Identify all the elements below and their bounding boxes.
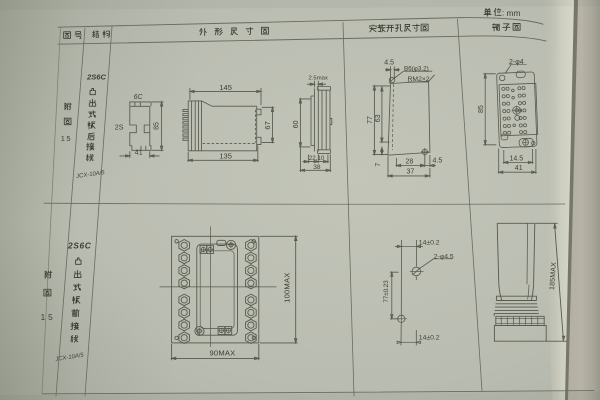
svg-text::: : bbox=[502, 8, 504, 17]
svg-text:22,10: 22,10 bbox=[309, 155, 325, 162]
svg-text:6C: 6C bbox=[134, 94, 144, 101]
svg-text:37: 37 bbox=[407, 169, 415, 176]
svg-text:2-φ4.5: 2-φ4.5 bbox=[434, 253, 454, 260]
svg-text:15: 15 bbox=[61, 134, 72, 143]
svg-text:145: 145 bbox=[219, 83, 232, 92]
svg-text:85: 85 bbox=[154, 122, 161, 130]
svg-text:2.5max: 2.5max bbox=[309, 75, 328, 81]
svg-text:77: 77 bbox=[367, 116, 374, 124]
svg-text:135: 135 bbox=[219, 151, 232, 160]
svg-text:41: 41 bbox=[135, 150, 143, 157]
svg-text:4.5: 4.5 bbox=[384, 60, 394, 67]
svg-text:mm: mm bbox=[507, 8, 521, 18]
svg-text:14.5: 14.5 bbox=[510, 156, 524, 163]
svg-text:100MAX: 100MAX bbox=[283, 273, 292, 303]
svg-text:B6(φ3.2): B6(φ3.2) bbox=[404, 65, 429, 72]
svg-text:14±0.2: 14±0.2 bbox=[419, 335, 440, 342]
svg-text:85: 85 bbox=[478, 105, 485, 113]
svg-text:77±0.23: 77±0.23 bbox=[383, 280, 390, 303]
svg-text:90MAX: 90MAX bbox=[210, 349, 236, 358]
svg-text:2S6C: 2S6C bbox=[67, 241, 92, 251]
svg-text:63: 63 bbox=[375, 114, 382, 122]
svg-text:2S: 2S bbox=[115, 124, 124, 131]
svg-text:7: 7 bbox=[375, 163, 382, 167]
svg-text:2S6C: 2S6C bbox=[86, 73, 107, 82]
svg-text:38: 38 bbox=[313, 164, 321, 171]
svg-text:60: 60 bbox=[293, 120, 300, 128]
svg-text:41: 41 bbox=[515, 165, 523, 172]
svg-text:4.5: 4.5 bbox=[433, 158, 443, 165]
svg-text:2-φ4: 2-φ4 bbox=[509, 59, 524, 66]
svg-text:RM2×2: RM2×2 bbox=[408, 76, 430, 83]
svg-text:15: 15 bbox=[41, 313, 56, 322]
svg-text:14±0.2: 14±0.2 bbox=[419, 240, 440, 247]
svg-text:67: 67 bbox=[263, 121, 272, 129]
svg-text:28: 28 bbox=[406, 158, 414, 165]
